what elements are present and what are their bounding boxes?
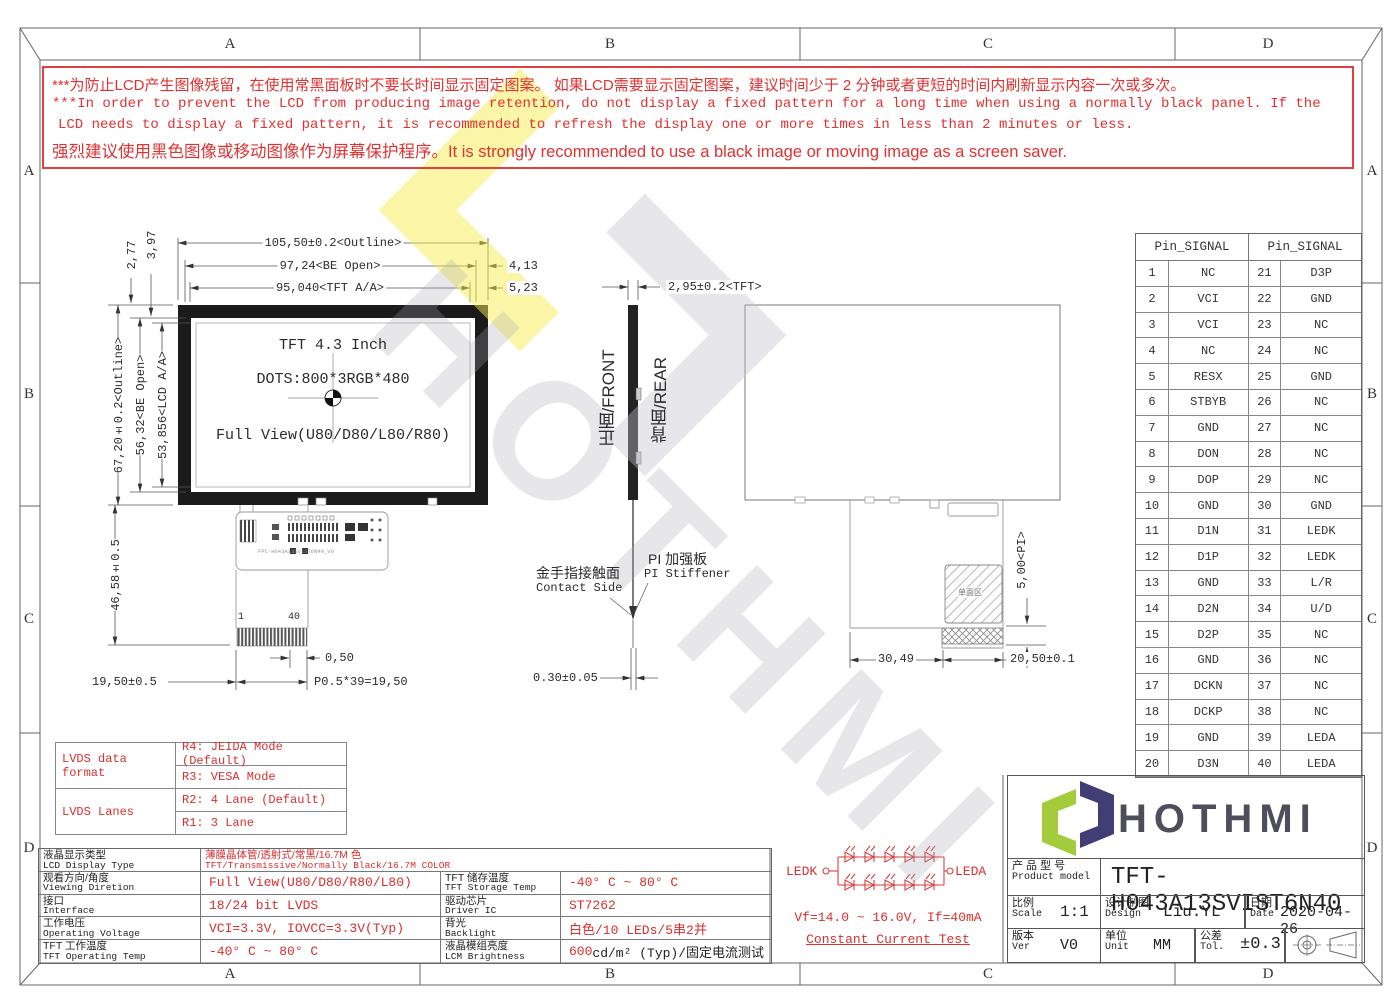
dim-pitch-one: 0,50: [323, 651, 356, 665]
spec-table: 液晶显示类型 LCD Display Type 薄膜晶体管/透射式/常黑/16.…: [38, 848, 772, 964]
pin-table-row: 17 DCKN 37 NC: [1136, 674, 1361, 700]
zone-top-b: B: [605, 36, 615, 53]
pin-table-row: 9 DOP 29 NC: [1136, 467, 1361, 493]
zone-top-a: A: [225, 36, 236, 53]
pin-signal: GND: [1281, 287, 1361, 313]
zone-bottom-c: C: [983, 966, 993, 983]
pin-number: 23: [1249, 313, 1282, 339]
pin-number: 27: [1249, 416, 1282, 442]
spec-storage-temp-value: -40° C ~ 80° C: [561, 872, 771, 895]
dim-tail-width-2: 20,50±0.1: [1008, 652, 1077, 666]
lvds-jeida-option: R4: JEIDA Mode (Default): [176, 743, 346, 766]
pi-stiffener-label-en: PI Stiffener: [644, 567, 730, 581]
spec-display-type-value: 薄膜晶体管/透射式/常黑/16.7M 色 TFT/Transmissive/No…: [201, 849, 771, 872]
pin-table-row: 6 STBYB 26 NC: [1136, 390, 1361, 416]
lvds-4lane-option: R2: 4 Lane (Default): [176, 789, 346, 812]
pin-number: 33: [1249, 571, 1282, 597]
zone-left-b: B: [24, 386, 34, 403]
pin-signal: GND: [1169, 416, 1249, 442]
zone-left-a: A: [24, 163, 35, 180]
model-label-cell: 产 品 型 号 Product model: [1007, 858, 1101, 896]
lvds-data-format-row: LVDS data format R4: JEIDA Mode (Default…: [56, 743, 346, 789]
pin-signal: STBYB: [1169, 390, 1249, 416]
pin-signal: D3N: [1169, 751, 1249, 777]
pin-number: 18: [1136, 700, 1169, 726]
pin-table-row: 11 D1N 31 LEDK: [1136, 519, 1361, 545]
pin-number: 36: [1249, 648, 1282, 674]
dim-outline-height: 67,20±0.2<Outline>: [111, 337, 128, 473]
scale-value: 1:1: [1060, 903, 1089, 921]
spec-brightness-value: 600 cd/m² (Typ)/固定电流测试: [561, 940, 771, 963]
pin-number: 5: [1136, 364, 1169, 390]
pin-number: 1: [1136, 261, 1169, 287]
pin-number: 9: [1136, 467, 1169, 493]
dim-gap-277: 2,77: [124, 241, 141, 270]
pin-table-row: 14 D2N 34 U/D: [1136, 596, 1361, 622]
pin-signal: GND: [1169, 725, 1249, 751]
pin-signal: GND: [1169, 571, 1249, 597]
pin-number: 29: [1249, 467, 1282, 493]
spec-storage-temp-label: TFT 储存温度TFT Storage Temp: [441, 872, 561, 895]
zone-right-d: D: [1367, 840, 1378, 857]
pin-number: 13: [1136, 571, 1169, 597]
pin-signal: DCKP: [1169, 700, 1249, 726]
rear-view: [745, 305, 1060, 648]
pin-table-row: 4 NC 24 NC: [1136, 338, 1361, 364]
pin-signal: NC: [1281, 674, 1361, 700]
pin-signal: GND: [1169, 493, 1249, 519]
spec-backlight-label: 背光Backlight: [441, 917, 561, 940]
pin-signal: NC: [1281, 442, 1361, 468]
lvds-config-table: LVDS data format R4: JEIDA Mode (Default…: [55, 742, 347, 835]
dim-fpc-thickness: 0.30±0.05: [531, 671, 600, 685]
led-backlight-circuit: [823, 846, 953, 890]
lvds-lanes-label: LVDS Lanes: [56, 789, 176, 834]
unit-cell: 单位Unit MM: [1100, 928, 1195, 963]
contact-side-label-cn: 金手指接触面: [536, 563, 620, 583]
pin-number: 10: [1136, 493, 1169, 519]
dim-gap-397: 3,97: [144, 231, 161, 260]
spec-brightness-label: 液晶模组亮度LCM Brightness: [441, 940, 561, 963]
pin-signal: NC: [1281, 313, 1361, 339]
front-view-viewing-label: Full View(U80/D80/L80/R80): [216, 427, 450, 444]
stiffener-area: [942, 628, 1003, 644]
dim-pitch-total: P0.5*39=19,50: [312, 675, 410, 689]
pin-number: 30: [1249, 493, 1282, 519]
pin-signal: U/D: [1281, 596, 1361, 622]
fpc-pin1-label: 1: [238, 612, 244, 623]
pin-signal: GND: [1281, 493, 1361, 519]
pin-table-row: 16 GND 36 NC: [1136, 648, 1361, 674]
pin-signal: L/R: [1281, 571, 1361, 597]
front-view: [178, 305, 488, 646]
zone-left-d: D: [24, 840, 35, 857]
pin-number: 2: [1136, 287, 1169, 313]
pin-signal: VCI: [1169, 313, 1249, 339]
zone-bottom-b: B: [605, 966, 615, 983]
pin-signal: NC: [1169, 338, 1249, 364]
pin-table-row: 15 D2P 35 NC: [1136, 622, 1361, 648]
side-rear-label: 背面/REAR: [652, 357, 669, 443]
zone-right-c: C: [1367, 611, 1377, 628]
pin-signal: LEDA: [1281, 751, 1361, 777]
pin-signal: NC: [1281, 648, 1361, 674]
spec-op-temp-value: -40° C ~ 80° C: [201, 940, 441, 963]
pin-number: 7: [1136, 416, 1169, 442]
single-side-area-label: 单面区: [958, 587, 982, 598]
designer-name: Liu.YL: [1163, 903, 1221, 921]
pin-number: 17: [1136, 674, 1169, 700]
spec-viewing-label: 观看方向/角度Viewing Diretion: [39, 872, 201, 895]
pin-number: 34: [1249, 596, 1282, 622]
pin-signal: DOP: [1169, 467, 1249, 493]
pin-table-row: 7 GND 27 NC: [1136, 416, 1361, 442]
pin-number: 6: [1136, 390, 1169, 416]
dim-be-open-height: 56,32<BE Open>: [133, 355, 150, 456]
pin-table-row: 5 RESX 25 GND: [1136, 364, 1361, 390]
brand-name: HOTHMI: [1118, 797, 1318, 842]
pin-number: 20: [1136, 751, 1169, 777]
pin-signal: DON: [1169, 442, 1249, 468]
pin-signal: NC: [1281, 338, 1361, 364]
front-view-size-label: TFT 4.3 Inch: [279, 337, 387, 354]
pin-number: 28: [1249, 442, 1282, 468]
pin-signal: LEDA: [1281, 725, 1361, 751]
pin-table-row: 13 GND 33 L/R: [1136, 571, 1361, 597]
dim-fpc-length: 46,58±0.5: [108, 539, 125, 611]
pin-number: 11: [1136, 519, 1169, 545]
pin-signal: VCI: [1169, 287, 1249, 313]
spec-voltage-value: VCI=3.3V, IOVCC=3.3V(Typ): [201, 917, 441, 940]
pin-number: 39: [1249, 725, 1282, 751]
dim-tail-width: 19,50±0.5: [90, 675, 159, 689]
dim-outline-width: 105,50±0.2<Outline>: [263, 236, 404, 250]
warning-line-2: ***In order to prevent the LCD from prod…: [52, 96, 1321, 112]
pin-signal: NC: [1281, 416, 1361, 442]
pin-table-row: 1 NC 21 D3P: [1136, 261, 1361, 287]
pin-table-row: 20 D3N 40 LEDA: [1136, 751, 1361, 777]
zone-right-a: A: [1367, 163, 1378, 180]
pin-number: 22: [1249, 287, 1282, 313]
pin-signal: LEDK: [1281, 519, 1361, 545]
zone-right-b: B: [1367, 386, 1377, 403]
pin-table-row: 10 GND 30 GND: [1136, 493, 1361, 519]
spec-driver-ic-value: ST7262: [561, 895, 771, 918]
warning-line-1: ***为防止LCD产生图像残留，在使用常黑面板时不要长时间显示固定图案。 如果L…: [52, 74, 1185, 95]
pin-signal: RESX: [1169, 364, 1249, 390]
pin-number: 40: [1249, 751, 1282, 777]
pin-table-header-right: Pin_SIGNAL: [1249, 234, 1361, 260]
pin-table-row: 18 DCKP 38 NC: [1136, 700, 1361, 726]
version-cell: 版本Ver V0: [1007, 928, 1101, 963]
contact-side-label-en: Contact Side: [536, 581, 622, 595]
pin-table-row: 12 D1P 32 LEDK: [1136, 545, 1361, 571]
pin-signal: DCKN: [1169, 674, 1249, 700]
pin-table-row: 19 GND 39 LEDA: [1136, 725, 1361, 751]
dim-tft-aa-width: 95,040<TFT A/A>: [274, 281, 386, 295]
image-retention-warning: ***为防止LCD产生图像残留，在使用常黑面板时不要长时间显示固定图案。 如果L…: [42, 66, 1354, 169]
spec-op-temp-label: TFT 工作温度TFT Operating Temp: [39, 940, 201, 963]
date-cell: 日期Date 2020-04-26: [1245, 895, 1365, 929]
pin-signal: D2N: [1169, 596, 1249, 622]
dim-lcd-aa-height: 53,856<LCD A/A>: [155, 351, 172, 459]
scale-cell: 比例Scale 1:1: [1007, 895, 1101, 929]
fpc-gold-fingers: [237, 628, 307, 646]
dim-be-open-width: 97,24<BE Open>: [278, 259, 383, 273]
pin-number: 35: [1249, 622, 1282, 648]
version-value: V0: [1060, 937, 1078, 954]
model-value-cell: TFT-H043A13SVIST6N40: [1100, 858, 1365, 896]
unit-value: MM: [1153, 937, 1171, 954]
pin-signal: NC: [1281, 622, 1361, 648]
front-view-dots-label: DOTS:800*3RGB*480: [256, 371, 409, 388]
pin-signal: GND: [1281, 364, 1361, 390]
pin-signal: GND: [1169, 648, 1249, 674]
spec-backlight-value: 白色/10 LEDs/5串2并: [561, 917, 771, 940]
fpc-pin40-label: 40: [288, 612, 300, 623]
dim-pi-length: 5,00<PI>: [1014, 531, 1031, 589]
led-vf-if-spec: Vf=14.0 ~ 16.0V, If=40mA: [794, 910, 981, 925]
pin-table-header-row: Pin_SIGNAL Pin_SIGNAL: [1136, 234, 1361, 261]
pin-number: 4: [1136, 338, 1169, 364]
pin-signal: NC: [1169, 261, 1249, 287]
pin-number: 16: [1136, 648, 1169, 674]
pin-number: 24: [1249, 338, 1282, 364]
pin-number: 26: [1249, 390, 1282, 416]
pin-number: 19: [1136, 725, 1169, 751]
pin-signal: NC: [1281, 390, 1361, 416]
pin-number: 38: [1249, 700, 1282, 726]
pin-signal: D3P: [1281, 261, 1361, 287]
side-front-label: 正面/FRONT: [600, 349, 617, 446]
leda-label: LEDA: [955, 864, 986, 879]
pin-number: 14: [1136, 596, 1169, 622]
pin-number: 32: [1249, 545, 1282, 571]
pin-signal: NC: [1281, 467, 1361, 493]
pin-number: 15: [1136, 622, 1169, 648]
pin-signal: D1P: [1169, 545, 1249, 571]
zone-bottom-a: A: [225, 966, 236, 983]
pin-signal: D1N: [1169, 519, 1249, 545]
pin-signal: D2P: [1169, 622, 1249, 648]
zone-top-d: D: [1263, 36, 1274, 53]
pin-signal: NC: [1281, 700, 1361, 726]
pin-number: 3: [1136, 313, 1169, 339]
warning-line-4: 强烈建议使用黑色图像或移动图像作为屏幕保护程序。It is strongly r…: [52, 138, 1067, 162]
warning-line-3: LCD needs to display a fixed pattern, it…: [58, 117, 1133, 133]
pin-number: 25: [1249, 364, 1282, 390]
dim-gap-523: 5,23: [507, 281, 540, 295]
pin-signal: LEDK: [1281, 545, 1361, 571]
pin-number: 21: [1249, 261, 1282, 287]
fpc-part-number: FPC-H043A13SVIST6N40_V0: [258, 548, 334, 555]
pin-signal-table: Pin_SIGNAL Pin_SIGNAL 1 NC 21 D3P 2 VCI …: [1135, 233, 1362, 778]
spec-viewing-value: Full View(U80/D80/R80/L80): [201, 872, 441, 895]
pin-number: 31: [1249, 519, 1282, 545]
led-test-note: Constant Current Test: [806, 932, 970, 947]
tolerance-cell: 公差Tol. ±0.3: [1195, 928, 1285, 963]
spec-voltage-label: 工作电压Operating Voltage: [39, 917, 201, 940]
pin-number: 12: [1136, 545, 1169, 571]
dim-gap-413: 4,13: [507, 259, 540, 273]
spec-interface-label: 接口Interface: [39, 895, 201, 918]
zone-bottom-d: D: [1263, 966, 1274, 983]
ledk-label: LEDK: [786, 864, 817, 879]
spec-driver-ic-label: 驱动芯片Driver IC: [441, 895, 561, 918]
pin-number: 8: [1136, 442, 1169, 468]
lvds-lanes-row: LVDS Lanes R2: 4 Lane (Default) R1: 3 La…: [56, 789, 346, 834]
pin-table-row: 3 VCI 23 NC: [1136, 313, 1361, 339]
lvds-vesa-option: R3: VESA Mode: [176, 766, 346, 789]
pin-table-row: 8 DON 28 NC: [1136, 442, 1361, 468]
spec-display-type-label: 液晶显示类型 LCD Display Type: [39, 849, 201, 872]
zone-left-c: C: [24, 611, 34, 628]
pin-table-row: 2 VCI 22 GND: [1136, 287, 1361, 313]
pi-stiffener-label-cn: PI 加强板: [648, 549, 707, 569]
datasheet-page: HOTHMI A B C D A B C D A B C D A B C D *…: [0, 0, 1400, 997]
tolerance-value: ±0.3: [1240, 935, 1281, 954]
projection-cell: [1285, 928, 1365, 963]
design-cell: 设计制图Design Liu.YL: [1100, 895, 1245, 929]
pin-table-header-left: Pin_SIGNAL: [1136, 234, 1249, 260]
zone-top-c: C: [983, 36, 993, 53]
dim-tft-thickness: 2,95±0.2<TFT>: [666, 280, 764, 294]
lvds-3lane-option: R1: 3 Lane: [176, 812, 346, 835]
dim-tail-offset: 30,49: [876, 652, 916, 666]
lvds-data-format-label: LVDS data format: [56, 743, 176, 788]
spec-interface-value: 18/24 bit LVDS: [201, 895, 441, 918]
pin-number: 37: [1249, 674, 1282, 700]
